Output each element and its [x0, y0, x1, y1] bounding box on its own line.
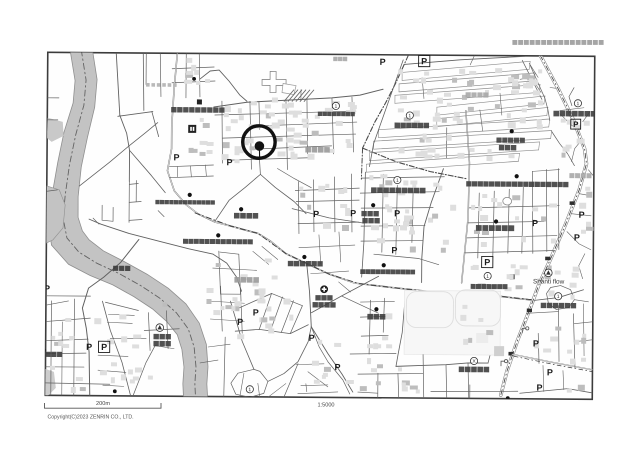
svg-text:1: 1: [248, 387, 251, 393]
svg-text:P: P: [533, 339, 539, 349]
svg-text:P: P: [253, 308, 259, 318]
svg-text:Copyright(C)2023 ZENRIN CO., L: Copyright(C)2023 ZENRIN CO., LTD.: [48, 415, 134, 421]
svg-text:P: P: [350, 208, 356, 218]
svg-text:P: P: [532, 218, 538, 228]
svg-text:P: P: [574, 232, 580, 242]
svg-text:P: P: [484, 257, 490, 267]
svg-text:P: P: [573, 120, 579, 129]
svg-text:P: P: [173, 152, 179, 162]
svg-text:1:5000: 1:5000: [317, 403, 334, 409]
svg-text:P: P: [547, 367, 553, 377]
svg-text:1: 1: [396, 178, 399, 184]
svg-text:P: P: [226, 157, 232, 167]
svg-text:P: P: [579, 210, 585, 220]
svg-text:P: P: [394, 208, 400, 218]
svg-text:P: P: [391, 245, 397, 255]
svg-text:P: P: [335, 362, 341, 372]
svg-text:1: 1: [408, 113, 411, 119]
svg-text:1: 1: [557, 294, 560, 300]
svg-text:1: 1: [577, 101, 580, 107]
svg-text:Shanti flow: Shanti flow: [533, 278, 565, 285]
svg-text:P: P: [536, 383, 542, 393]
svg-text:P: P: [309, 333, 315, 343]
svg-text:P: P: [380, 57, 386, 67]
svg-text:200m: 200m: [96, 401, 110, 407]
svg-text:P: P: [101, 342, 107, 352]
svg-text:P: P: [237, 317, 243, 327]
svg-text:1: 1: [334, 104, 337, 110]
svg-text:P: P: [313, 209, 319, 219]
svg-text:1: 1: [486, 274, 489, 280]
svg-text:P: P: [421, 56, 427, 66]
svg-text:P: P: [86, 342, 92, 352]
